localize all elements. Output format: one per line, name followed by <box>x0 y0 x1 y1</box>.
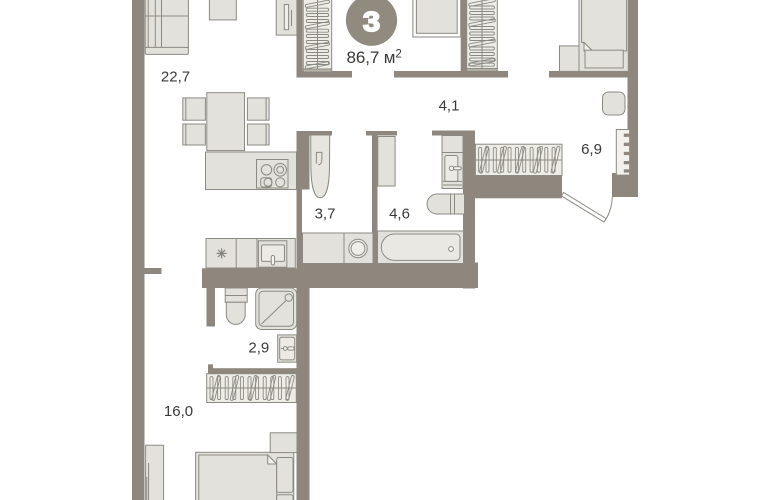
svg-text:6,9: 6,9 <box>581 141 602 158</box>
svg-text:3: 3 <box>363 6 380 37</box>
svg-text:16,0: 16,0 <box>164 403 193 420</box>
svg-text:22,7: 22,7 <box>161 69 190 86</box>
svg-text:3,7: 3,7 <box>315 206 336 223</box>
svg-text:4,6: 4,6 <box>389 206 410 223</box>
svg-text:86,7 м2: 86,7 м2 <box>347 48 402 67</box>
svg-text:4,1: 4,1 <box>439 98 460 115</box>
svg-text:2,9: 2,9 <box>248 339 269 356</box>
